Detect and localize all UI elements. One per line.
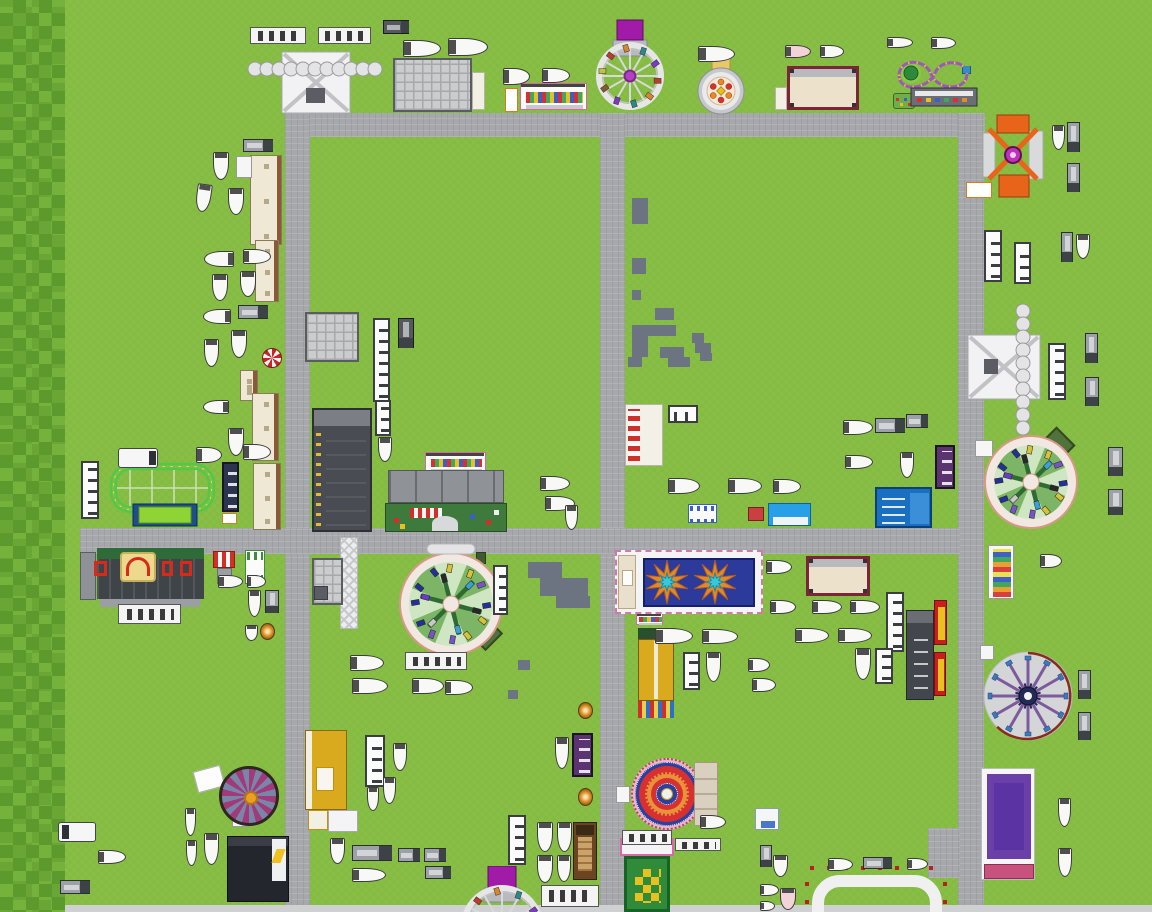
fairground-map (0, 0, 1152, 912)
truck-roof (1113, 451, 1119, 466)
caravan[interactable] (245, 625, 258, 641)
goods-stall[interactable] (425, 452, 486, 472)
ticket-box[interactable] (505, 88, 518, 112)
box-truck[interactable] (398, 848, 420, 862)
truck-cab (379, 846, 392, 860)
caravan-cap (567, 506, 576, 511)
caravan-cap (353, 870, 359, 880)
truck-roof (247, 143, 262, 148)
neon-arch (126, 557, 150, 576)
caravan[interactable] (213, 152, 229, 180)
polyp-octopus-ride[interactable] (984, 432, 1078, 532)
box-truck[interactable] (1067, 163, 1080, 192)
path-patch (628, 357, 642, 367)
packed-ride-transport[interactable] (960, 303, 1060, 430)
blue-canopy-stall[interactable] (768, 503, 811, 526)
caravan[interactable] (655, 628, 693, 644)
annex (80, 552, 96, 600)
caravan-cap (761, 903, 764, 909)
caravan-cap (369, 788, 377, 792)
caravan[interactable] (185, 808, 196, 836)
center-line (654, 641, 658, 699)
dot-stall[interactable] (688, 504, 717, 523)
box-truck[interactable] (238, 305, 268, 319)
caravan-cap (708, 653, 719, 658)
caravan[interactable] (330, 838, 345, 864)
caravan[interactable] (228, 428, 244, 456)
trailer-windows (379, 324, 388, 398)
caravan[interactable] (557, 855, 571, 882)
caravan-cap (775, 856, 786, 860)
windshield (149, 451, 156, 465)
maze-floor-plates[interactable] (305, 312, 359, 362)
top-spin-ride[interactable] (983, 113, 1043, 199)
living-trailer[interactable] (875, 648, 893, 684)
dark-tower-building[interactable] (906, 610, 934, 700)
truck-roof (1089, 337, 1094, 352)
caravan[interactable] (702, 629, 738, 644)
living-trailer[interactable] (508, 815, 526, 865)
flatbed-trailer[interactable] (675, 838, 721, 851)
living-trailer[interactable] (572, 733, 593, 777)
box-truck[interactable] (60, 880, 90, 894)
gold-building[interactable] (305, 730, 347, 810)
caravan-cap (557, 738, 567, 744)
caravan[interactable] (565, 505, 578, 530)
band-top (690, 506, 715, 511)
spoke-flat-ride[interactable] (982, 650, 1074, 742)
door-dot (247, 385, 252, 390)
trailer-windows (579, 739, 590, 773)
caravan-cap (247, 626, 256, 629)
caravan[interactable] (240, 271, 256, 297)
box-truck[interactable] (1108, 447, 1123, 476)
caravan[interactable] (845, 455, 873, 469)
caravan[interactable] (228, 188, 244, 215)
box-truck[interactable] (1078, 670, 1091, 699)
path-patch (632, 336, 648, 357)
path-patch (632, 325, 676, 336)
neon-tube (94, 561, 107, 576)
caravan-cap (1060, 799, 1069, 804)
mat-pattern (635, 869, 661, 903)
pool-shallow (910, 493, 929, 524)
ride-graphic (983, 113, 1043, 199)
organ-pipes (578, 837, 592, 871)
caravan-cap (749, 660, 753, 670)
caravan-cap (669, 480, 675, 492)
deco-dot (486, 520, 491, 525)
box-truck[interactable] (1085, 377, 1099, 406)
living-trailer[interactable] (683, 652, 700, 690)
caravan[interactable] (812, 600, 842, 614)
box-truck[interactable] (265, 590, 279, 613)
caravan[interactable] (1052, 125, 1065, 150)
caravan[interactable] (773, 479, 801, 494)
caravan-cap (767, 562, 772, 572)
helter-tower[interactable] (625, 404, 663, 466)
truck-cab (258, 306, 268, 318)
caravan[interactable] (247, 575, 266, 588)
truck-roof (387, 25, 400, 31)
path-patch (528, 562, 562, 578)
flatbed-trailer[interactable] (405, 652, 467, 670)
caravan[interactable] (204, 251, 234, 267)
trailer-windows (1020, 248, 1029, 280)
living-trailer[interactable] (1014, 242, 1031, 284)
cream-annex[interactable] (308, 810, 328, 830)
trailer-windows (499, 571, 507, 611)
caravan-cap (703, 631, 709, 642)
path-patch (700, 353, 712, 361)
r-pattern-mat[interactable] (620, 838, 674, 912)
caravan[interactable] (352, 678, 388, 694)
box-truck[interactable] (1108, 489, 1123, 515)
spiral-food-stand[interactable] (260, 623, 275, 640)
caravan[interactable] (186, 840, 197, 866)
box-truck[interactable] (352, 845, 392, 861)
box-truck[interactable] (1078, 712, 1091, 740)
caravan-cap (413, 680, 419, 692)
goods-stall[interactable] (520, 83, 587, 110)
stall-annex[interactable] (472, 72, 485, 110)
caravan[interactable] (555, 737, 569, 769)
trailer-windows (674, 412, 694, 421)
caravan-cap (774, 481, 779, 492)
striped-roof-stall[interactable] (213, 551, 235, 568)
living-trailer[interactable] (365, 735, 385, 787)
door-dot (265, 291, 270, 296)
trailer-windows (689, 658, 698, 686)
caravan-cap (219, 577, 224, 586)
caravan[interactable] (766, 560, 792, 574)
caravan[interactable] (248, 590, 261, 617)
red-sign[interactable] (934, 652, 946, 696)
cream-stall[interactable] (250, 155, 282, 245)
caravan[interactable] (748, 658, 770, 672)
tent-post (790, 69, 794, 73)
goods-row (431, 459, 482, 467)
dark-show-front[interactable] (227, 836, 289, 902)
caravan[interactable] (795, 628, 829, 643)
truck-roof (429, 870, 442, 875)
caravan[interactable] (887, 37, 913, 48)
tent-entrance (984, 864, 1034, 879)
caravan[interactable] (1076, 234, 1090, 259)
tent-post (852, 69, 856, 73)
ticket-box[interactable] (222, 513, 237, 524)
dark-garage-building[interactable] (312, 408, 372, 532)
star-mats-attraction[interactable] (615, 550, 763, 614)
path-patch (540, 578, 588, 596)
post (810, 866, 814, 870)
gold-strip (306, 731, 312, 809)
funhouse-roof (388, 470, 504, 503)
garage-roof (314, 410, 370, 426)
white-stall[interactable] (236, 156, 252, 178)
caravan[interactable] (367, 787, 379, 811)
flatbed-trailer[interactable] (250, 27, 306, 44)
caravan-cap (351, 657, 357, 669)
caravan[interactable] (542, 68, 570, 83)
red-box[interactable] (748, 507, 764, 521)
caravan[interactable] (383, 777, 396, 804)
deco-dot (400, 524, 405, 529)
living-trailer[interactable] (1048, 343, 1066, 400)
ride-graphic (596, 20, 664, 112)
caravan[interactable] (855, 648, 871, 680)
ride-graphic (615, 550, 763, 614)
door-dot (247, 379, 252, 384)
caravan-cap (559, 856, 569, 861)
caravan[interactable] (537, 855, 553, 883)
caravan[interactable] (1058, 798, 1071, 827)
caravan-cap (380, 438, 390, 443)
caravan-cap (844, 422, 849, 433)
caravan[interactable] (785, 45, 811, 58)
caravan-cap (446, 682, 451, 693)
living-trailer[interactable] (668, 405, 698, 423)
mat-field (624, 856, 670, 912)
color-base (638, 701, 674, 718)
caravan[interactable] (403, 40, 441, 57)
caravan-cap (230, 189, 242, 194)
box-truck[interactable] (1061, 232, 1073, 262)
organ-wagon[interactable] (573, 822, 597, 880)
caravan-cap (504, 70, 509, 83)
umbrella[interactable] (262, 348, 282, 368)
caravan[interactable] (700, 815, 726, 829)
caravan[interactable] (231, 330, 247, 358)
band-top (247, 552, 263, 560)
white-annex[interactable] (328, 810, 358, 832)
red-sign[interactable] (934, 600, 947, 645)
flatbed-trailer[interactable] (622, 830, 672, 845)
maze-floor-plates[interactable] (393, 58, 472, 112)
round-striped-tent[interactable] (219, 766, 279, 826)
go-kart-track[interactable] (805, 866, 947, 912)
caravan-cap (395, 744, 405, 749)
caravan-cap (729, 480, 735, 492)
caravan-cap (332, 839, 343, 844)
neon-show-front[interactable] (80, 548, 204, 608)
trailer-windows (942, 451, 952, 485)
caravan[interactable] (557, 822, 572, 852)
box-truck[interactable] (425, 866, 451, 879)
caravan[interactable] (760, 884, 779, 896)
caravan[interactable] (448, 38, 488, 56)
path-patch (508, 690, 518, 699)
cargo (682, 842, 717, 849)
kids-coaster[interactable] (105, 458, 220, 530)
white-stall[interactable] (616, 786, 630, 803)
caravan-cap (244, 251, 249, 262)
box-truck[interactable] (760, 845, 772, 867)
caravan[interactable] (350, 655, 384, 671)
caravan-cap (244, 446, 249, 458)
caravan[interactable] (900, 452, 914, 478)
van[interactable] (118, 448, 158, 468)
caravan[interactable] (203, 400, 229, 414)
caravan[interactable] (203, 309, 231, 324)
ride-graphic (400, 548, 502, 656)
post (929, 866, 933, 870)
living-trailer[interactable] (984, 230, 1002, 282)
gold-window (316, 767, 334, 791)
caravan[interactable] (98, 850, 126, 864)
caravan[interactable] (728, 478, 762, 494)
caravan-cap (857, 649, 869, 655)
spiral-food-stand[interactable] (578, 788, 593, 806)
trailer-windows (228, 468, 237, 508)
caravan[interactable] (393, 743, 407, 771)
living-trailer[interactable] (493, 565, 508, 615)
road-top-horizontal (285, 113, 985, 137)
caravan[interactable] (194, 183, 213, 213)
box-truck[interactable] (1085, 333, 1098, 363)
box-truck[interactable] (906, 414, 928, 428)
truck-roof (242, 310, 257, 316)
packed-ride-transport[interactable] (248, 50, 382, 113)
caravan[interactable] (1058, 848, 1072, 877)
caravan-cap (223, 402, 228, 412)
truck-cab (1079, 690, 1090, 699)
canopy-front (773, 517, 807, 524)
caravan[interactable] (770, 600, 796, 614)
kiddie-carousel[interactable] (698, 58, 744, 114)
ride-graphic (984, 432, 1078, 532)
caravan[interactable] (204, 833, 219, 865)
trailer-windows (882, 654, 891, 680)
truck-roof (1071, 167, 1076, 182)
caravan[interactable] (412, 678, 444, 694)
door-dot (265, 496, 270, 501)
cream-stall[interactable] (253, 463, 281, 530)
truck-roof (427, 853, 438, 859)
caravan[interactable] (668, 478, 700, 494)
caravan[interactable] (843, 420, 873, 435)
flatbed-trailer[interactable] (541, 885, 599, 907)
garage-seams (326, 430, 366, 526)
rainbow-stripes (993, 549, 1011, 597)
caravan[interactable] (378, 437, 392, 462)
caravan-cap (353, 680, 359, 692)
truck-cab (1086, 397, 1098, 406)
seam (695, 793, 717, 795)
caravan-cap (233, 331, 245, 336)
show-tent-building[interactable] (806, 556, 870, 596)
caravan-cap (1060, 849, 1070, 854)
purple-rect-tent[interactable] (981, 768, 1035, 880)
truck-cab (1062, 252, 1072, 262)
caravan-cap (199, 184, 211, 191)
truck-cab (883, 858, 892, 868)
figure8-coaster[interactable] (885, 48, 980, 112)
truck-roof (909, 419, 920, 425)
caravan[interactable] (445, 680, 473, 695)
rainbow-stall[interactable] (988, 545, 1014, 599)
caravan-cap (813, 602, 818, 612)
polyp-octopus-ride[interactable] (400, 548, 502, 656)
steps (432, 516, 458, 531)
caravan-cap (242, 272, 254, 277)
caravan[interactable] (838, 628, 872, 643)
goods-row (639, 617, 662, 622)
door-dot (264, 426, 269, 431)
box-truck[interactable] (243, 139, 273, 152)
box-truck[interactable] (875, 418, 905, 433)
caravan[interactable] (212, 274, 228, 301)
caravan[interactable] (1040, 554, 1062, 568)
flatbed-trailer[interactable] (318, 27, 371, 44)
caravan-cap (541, 478, 546, 489)
trailer-windows (893, 598, 902, 648)
deco-dot (470, 514, 475, 519)
caravan-cap (771, 602, 776, 612)
living-trailer[interactable] (935, 445, 955, 489)
living-trailer[interactable] (373, 318, 390, 402)
caravan[interactable] (540, 476, 570, 491)
ferris-wheel[interactable] (596, 20, 664, 112)
truck-roof (401, 853, 412, 859)
van[interactable] (58, 822, 96, 842)
door-dot (264, 402, 269, 407)
caravan[interactable] (850, 600, 880, 614)
living-trailer[interactable] (81, 461, 99, 519)
tent-post (809, 589, 813, 593)
caravan[interactable] (218, 575, 243, 588)
caravan[interactable] (752, 678, 776, 692)
caravan-cap (902, 453, 912, 458)
fun-house-facade[interactable] (385, 470, 507, 532)
track-ring (812, 875, 942, 912)
tower-top (907, 611, 933, 623)
box-truck[interactable] (863, 857, 892, 869)
caravan-cap (187, 809, 194, 814)
box-truck[interactable] (424, 848, 446, 862)
caravan[interactable] (537, 822, 553, 852)
dark-crate[interactable] (314, 586, 328, 600)
stall-annex[interactable] (775, 87, 787, 110)
caravan[interactable] (706, 652, 721, 682)
caravan[interactable] (820, 45, 844, 58)
caravan-cap (829, 860, 834, 869)
flatbed-trailer[interactable] (118, 604, 181, 624)
road-bottom-band (65, 905, 1152, 912)
living-trailer[interactable] (375, 400, 391, 436)
pool-stall[interactable] (875, 487, 932, 528)
caravan[interactable] (352, 868, 386, 882)
caravan[interactable] (773, 855, 788, 877)
show-tent-building[interactable] (787, 66, 859, 110)
dark-truck[interactable] (383, 20, 409, 34)
living-trailer[interactable] (886, 592, 904, 652)
spiral-food-stand[interactable] (578, 702, 593, 719)
trailer-windows (1055, 349, 1064, 396)
blue-band-stall[interactable] (755, 808, 779, 830)
path-patch (692, 333, 704, 343)
caravan[interactable] (204, 339, 219, 367)
dark-truck[interactable] (398, 318, 414, 348)
box-truck[interactable] (1067, 122, 1080, 152)
ride-graphic (248, 50, 382, 113)
truck-cab (263, 140, 273, 151)
ferris-wheel-packed-south[interactable] (462, 866, 542, 912)
living-trailer[interactable] (222, 462, 239, 512)
caravan-cap (1078, 235, 1088, 240)
inner-mark (761, 821, 775, 828)
door-dot (264, 164, 269, 169)
